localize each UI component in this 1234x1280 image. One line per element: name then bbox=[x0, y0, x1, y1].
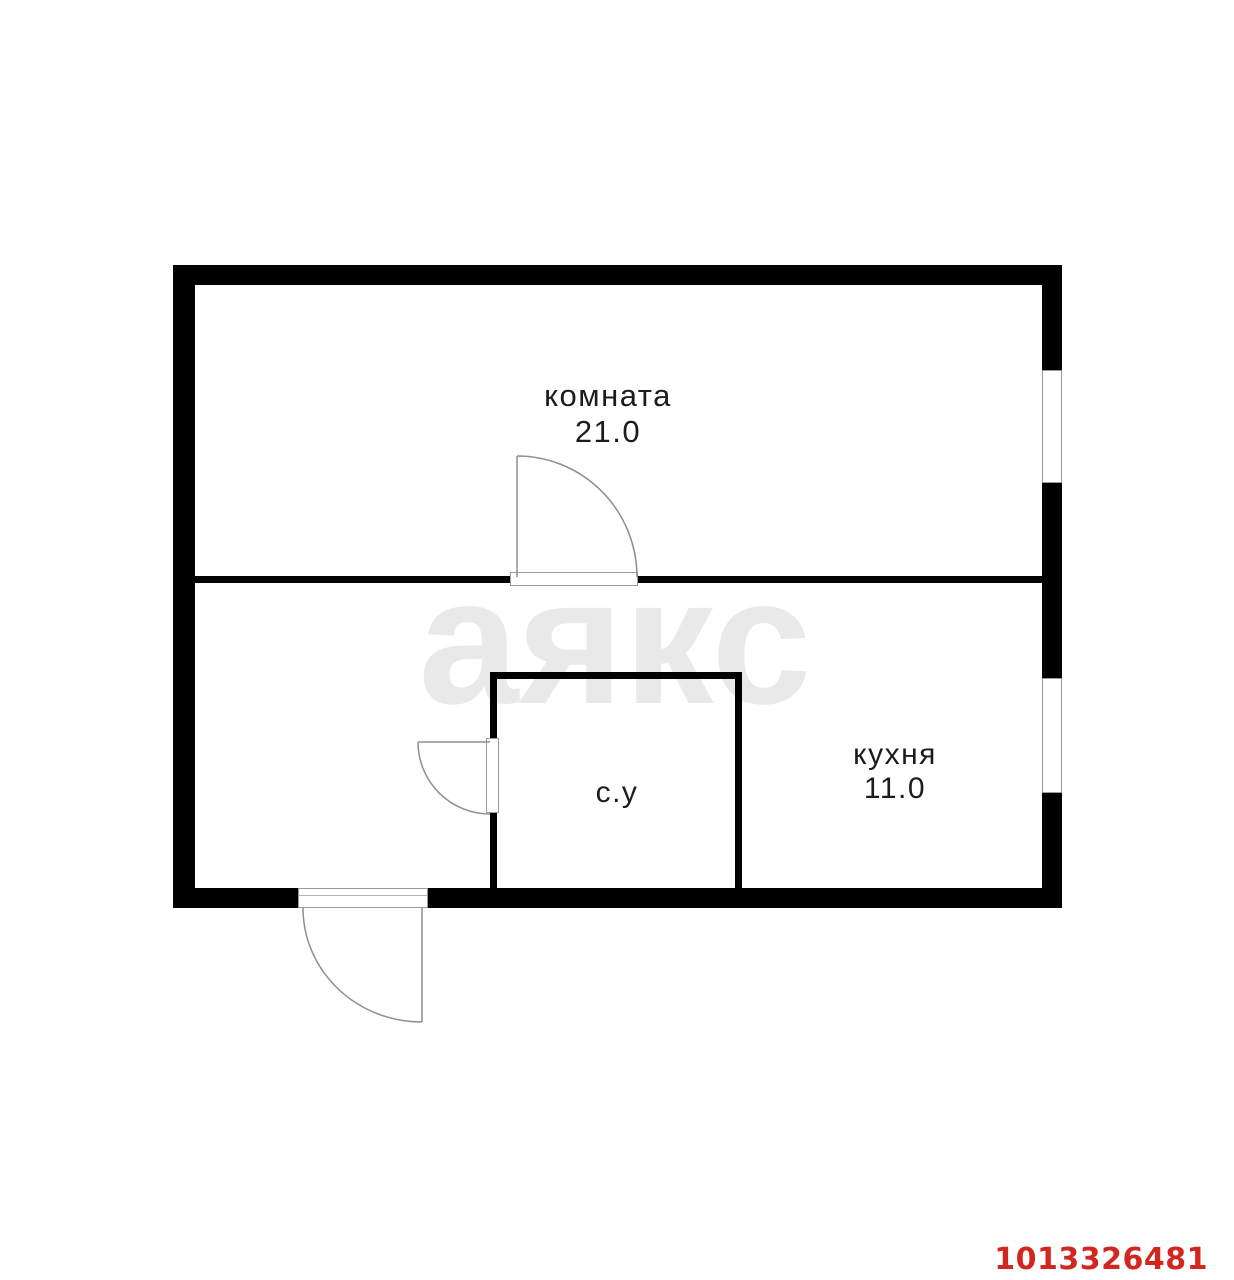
floorplan-image: аякс комната 21.0 кухня 11.0 с.у bbox=[0, 0, 1234, 1280]
entrance-door-swing bbox=[303, 908, 422, 1022]
living-room-door-swing bbox=[517, 456, 637, 577]
kitchen-area: 11.0 bbox=[853, 772, 937, 806]
bathroom-door-swing bbox=[418, 742, 490, 814]
living-room-name: комната bbox=[544, 378, 672, 414]
living-room-area: 21.0 bbox=[544, 414, 672, 450]
bathroom-label: с.у bbox=[596, 776, 639, 810]
kitchen-name: кухня bbox=[853, 738, 937, 772]
living-room-label: комната 21.0 bbox=[544, 378, 672, 450]
bathroom-name: с.у bbox=[596, 776, 639, 810]
door-swing-arcs bbox=[0, 0, 1234, 1280]
kitchen-label: кухня 11.0 bbox=[853, 738, 937, 806]
listing-id: 1013326481 bbox=[994, 1242, 1208, 1277]
